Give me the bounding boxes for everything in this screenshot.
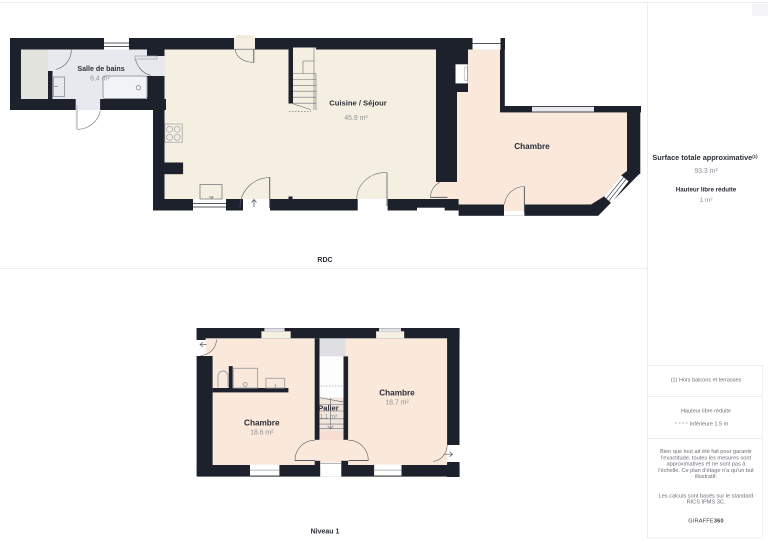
svg-text:(1) Hors balcons et terrasses: (1) Hors balcons et terrasses bbox=[671, 378, 742, 384]
svg-text:45.9 m²: 45.9 m² bbox=[344, 115, 368, 122]
svg-text:illustratif.: illustratif. bbox=[695, 474, 718, 480]
svg-text:RDC: RDC bbox=[317, 257, 332, 264]
svg-text:93.3 m²: 93.3 m² bbox=[694, 168, 718, 175]
svg-text:Inférieure 1.5 m: Inférieure 1.5 m bbox=[690, 421, 729, 427]
svg-text:Chambre: Chambre bbox=[514, 142, 550, 151]
svg-text:Palier: Palier bbox=[318, 404, 339, 413]
svg-text:1 m²: 1 m² bbox=[699, 197, 713, 204]
svg-text:Niveau 1: Niveau 1 bbox=[311, 529, 340, 536]
svg-text:Bien que tout ait été fait pou: Bien que tout ait été fait pour garantir bbox=[660, 449, 752, 455]
svg-text:approximatives et ne sont pas: approximatives et ne sont pas à bbox=[667, 462, 747, 468]
svg-text:Hauteur libre réduite: Hauteur libre réduite bbox=[681, 409, 731, 415]
svg-text:1.1 m²: 1.1 m² bbox=[320, 414, 338, 421]
svg-text:Chambre: Chambre bbox=[379, 388, 415, 397]
svg-text:l'exactitude, toutes les mesur: l'exactitude, toutes les mesures sont bbox=[661, 455, 751, 461]
svg-text:Salle de bains: Salle de bains bbox=[77, 65, 124, 73]
svg-text:Surface totale approximative(1: Surface totale approximative(1) bbox=[652, 153, 758, 162]
svg-text:GIRAFFE360: GIRAFFE360 bbox=[688, 519, 724, 525]
svg-text:18.6 m²: 18.6 m² bbox=[250, 430, 274, 437]
svg-text:Hauteur libre réduite: Hauteur libre réduite bbox=[676, 187, 737, 194]
svg-text:6.4 m²: 6.4 m² bbox=[90, 76, 111, 83]
svg-text:RICS IPMS 3C.: RICS IPMS 3C. bbox=[687, 500, 726, 506]
svg-text:Les calculs sont basés sur le: Les calculs sont basés sur le standard bbox=[659, 493, 754, 499]
svg-text:18.7 m²: 18.7 m² bbox=[385, 400, 409, 407]
svg-text:Chambre: Chambre bbox=[244, 418, 280, 427]
svg-text:Cuisine / Séjour: Cuisine / Séjour bbox=[329, 99, 386, 108]
svg-text:l'échelle. Ce plan d'étage n'a: l'échelle. Ce plan d'étage n'a qu'un but bbox=[658, 468, 754, 474]
